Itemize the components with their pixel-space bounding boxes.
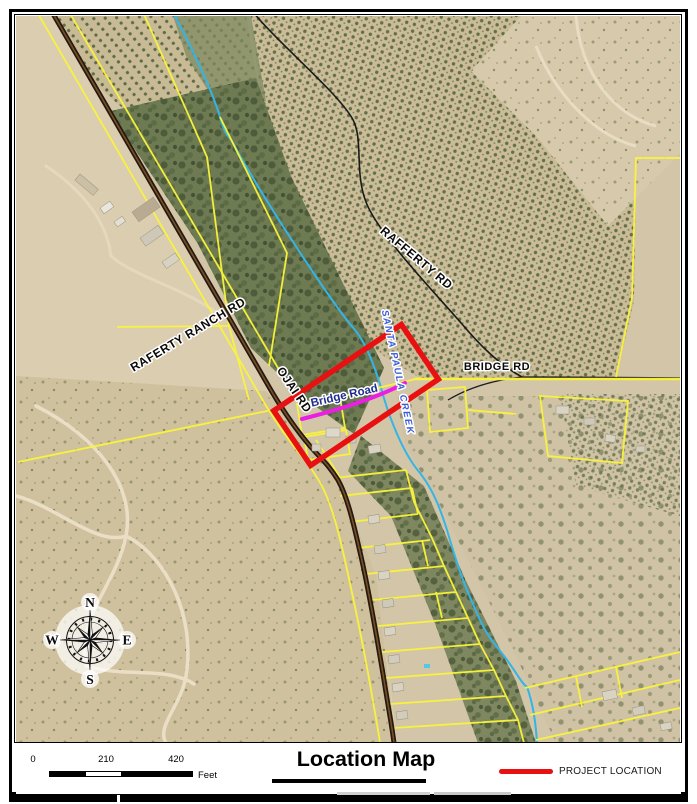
titleblock-divider xyxy=(117,795,120,802)
scale-bar xyxy=(49,771,193,777)
titleblock-top-bar xyxy=(9,795,688,802)
scale-segment-black-2 xyxy=(121,772,192,776)
scale-tick-210: 210 xyxy=(98,754,114,765)
scale-segment-black-1 xyxy=(50,772,86,776)
scale-tick-420: 420 xyxy=(168,754,184,765)
scale-segment-white xyxy=(86,772,122,776)
map-title: Location Map xyxy=(271,747,461,772)
figure-page: { "map": { "labels": { "raferty_ranch_rd… xyxy=(0,0,697,804)
legend: PROJECT LOCATION xyxy=(499,766,662,777)
project-location-legend-label: PROJECT LOCATION xyxy=(559,766,662,777)
outer-page-border xyxy=(9,9,688,795)
project-location-legend-line xyxy=(499,769,553,774)
scale-unit-label: Feet xyxy=(198,770,217,781)
title-underline xyxy=(272,779,426,783)
footer-strip: 0 210 420 Feet Location Map PROJECT LOCA… xyxy=(16,744,681,794)
scale-tick-0: 0 xyxy=(30,754,35,765)
